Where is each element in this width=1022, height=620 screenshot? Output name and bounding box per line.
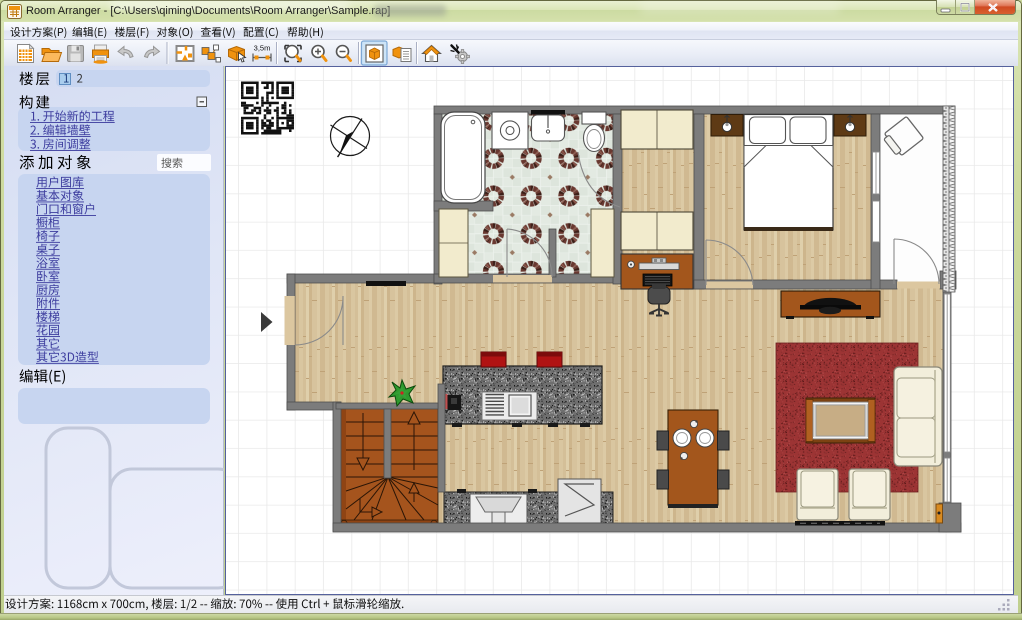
svg-text:3,5m: 3,5m bbox=[254, 44, 271, 53]
